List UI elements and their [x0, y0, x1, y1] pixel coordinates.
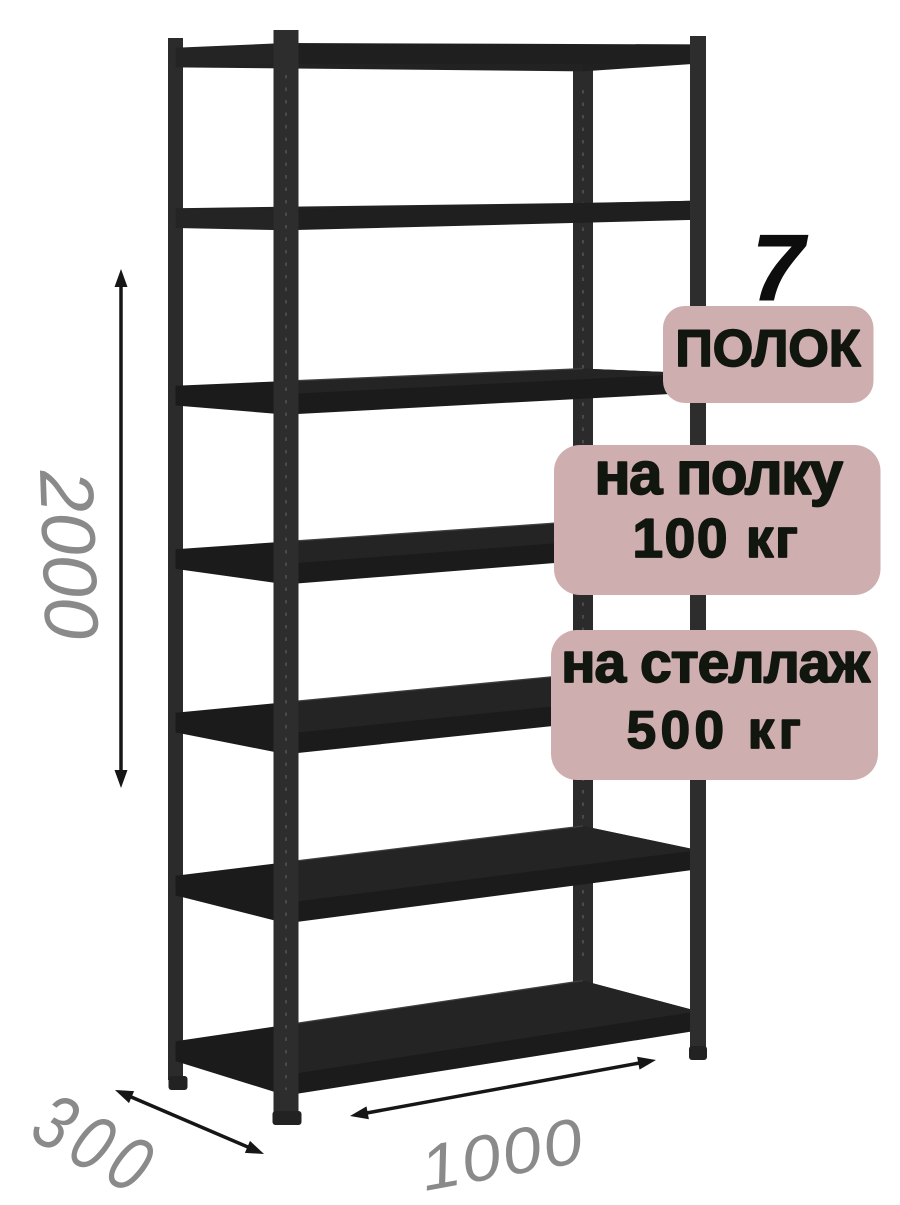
svg-text:7: 7	[752, 215, 808, 320]
svg-text:100 кг: 100 кг	[632, 507, 799, 569]
svg-text:2000: 2000	[23, 468, 114, 641]
svg-text:ПОЛОК: ПОЛОК	[675, 320, 860, 378]
svg-text:на стеллаж: на стеллаж	[561, 631, 870, 695]
svg-text:на полку: на полку	[594, 440, 843, 507]
svg-text:500 кг: 500 кг	[627, 701, 806, 760]
